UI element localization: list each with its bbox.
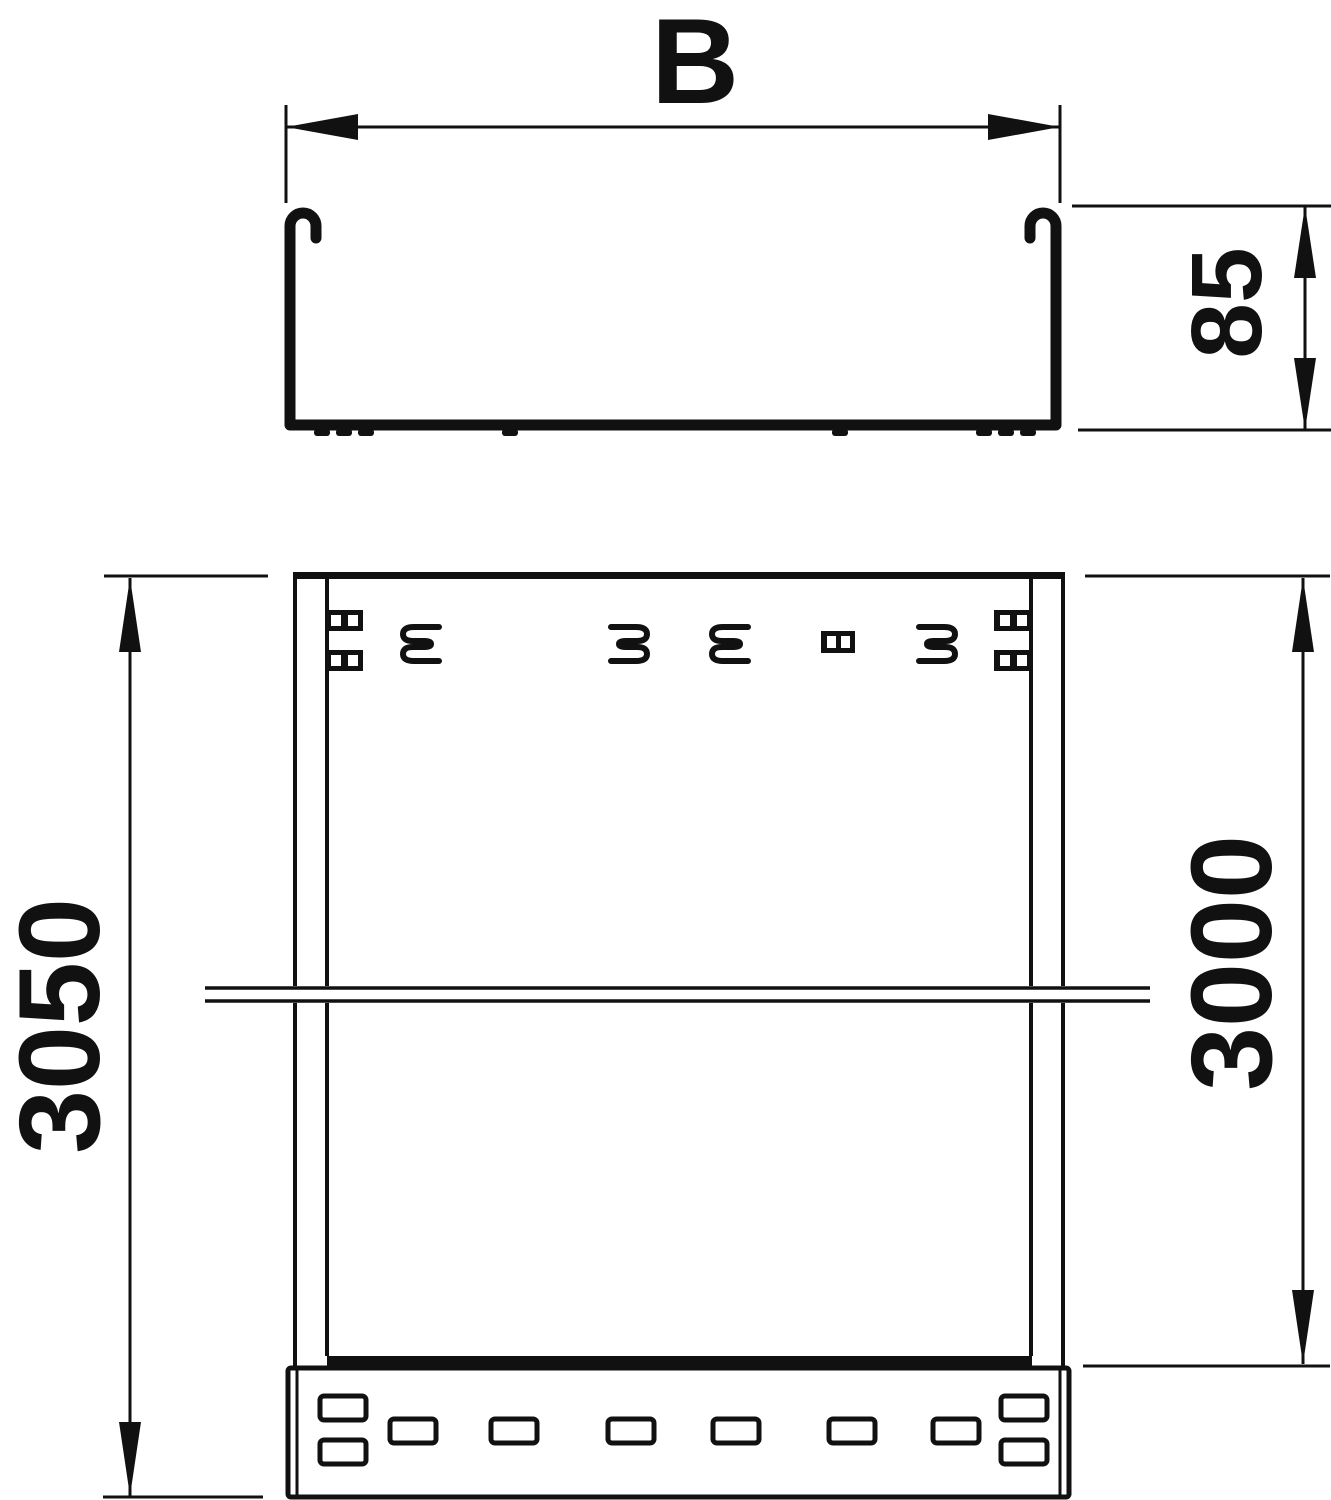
floor-double-hole <box>821 631 855 653</box>
dimension-arrow <box>1294 358 1316 430</box>
dimension-3050-label: 3050 <box>0 898 124 1154</box>
slot-open-left <box>611 627 647 661</box>
dimension-85-label: 85 <box>1171 247 1283 358</box>
tray-top-edge <box>293 572 1065 579</box>
break-lines <box>205 988 1150 1001</box>
rail-hole-cluster-left <box>325 610 363 671</box>
dimension-3000-label: 3000 <box>1168 835 1296 1091</box>
drawing-canvas: B 85 <box>0 0 1331 1500</box>
dimension-3000: 3000 <box>1083 576 1330 1366</box>
slot-open-right <box>403 627 439 661</box>
dimension-arrow <box>119 1422 141 1496</box>
floor-slot-row <box>403 627 955 661</box>
dimension-arrow <box>1292 578 1314 652</box>
plan-view: 3050 3000 <box>0 572 1330 1497</box>
dimension-arrow <box>988 114 1060 140</box>
dimension-arrow <box>1294 206 1316 278</box>
slot-open-left <box>919 627 955 661</box>
dimension-3050: 3050 <box>0 576 268 1497</box>
dimension-arrow <box>119 578 141 652</box>
slot-open-right <box>712 627 748 661</box>
tray-side-rails <box>295 579 1063 1368</box>
coupler <box>288 1356 1069 1497</box>
dimension-85: 85 <box>1072 206 1331 430</box>
dimension-b-label: B <box>651 0 739 129</box>
cross-section-view: B 85 <box>286 0 1331 436</box>
dimension-arrow <box>286 114 358 140</box>
tray-profile-outline <box>290 213 1056 425</box>
dimension-arrow <box>1292 1290 1314 1364</box>
rail-hole-cluster-right <box>994 610 1032 671</box>
coupler-slots <box>320 1396 1047 1464</box>
cable-tray-dimension-drawing: B 85 <box>0 0 1331 1500</box>
